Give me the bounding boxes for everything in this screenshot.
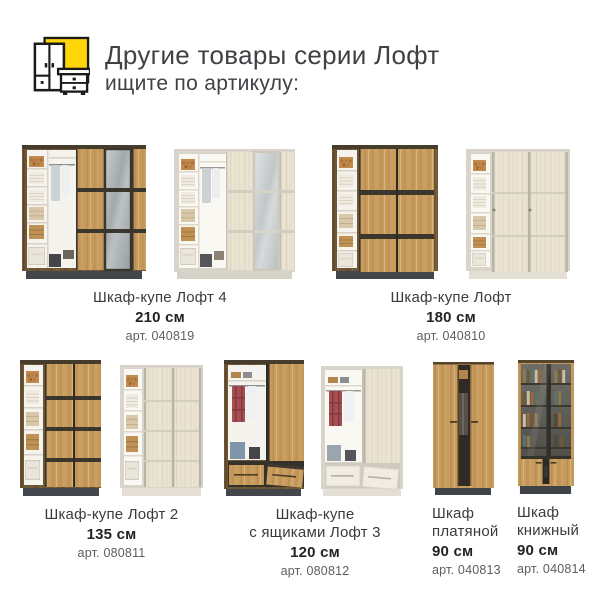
product-image-loft4-dark [20,144,148,280]
product-image-knizhny [517,359,575,495]
product-size: 210 см [20,309,300,327]
product-size: 120 см [222,544,408,562]
product-card-loft2: Шкаф-купе Лофт 2 135 см арт. 080811 [18,359,205,561]
product-image-loft2-dark [18,359,103,497]
product-article: арт. 040819 [20,329,300,344]
page-title: Другие товары серии Лофт [105,40,440,70]
product-card-loft3: Шкаф-купе с ящиками Лофт 3 120 см арт. 0… [222,359,408,579]
product-image-loft2-light [118,364,205,497]
product-article: арт. 080811 [18,546,205,561]
product-image-loft-dark [330,144,440,280]
product-name: Шкаф книжный [517,504,597,540]
product-image-loft4-light [172,148,297,280]
product-name: Шкаф платяной [432,505,516,541]
product-card-knizhny: Шкаф книжный 90 см арт. 040814 [517,359,597,577]
product-size: 90 см [432,543,516,561]
product-name: Шкаф-купе с ящиками Лофт 3 [222,506,408,542]
product-name: Шкаф-купе Лофт [330,289,572,307]
product-card-loft: Шкаф-купе Лофт 180 см арт. 040810 [330,144,572,344]
product-article: арт. 080812 [222,564,408,579]
product-name: Шкаф-купе Лофт 4 [20,289,300,307]
product-size: 135 см [18,526,205,544]
product-article: арт. 040813 [432,563,516,578]
product-image-loft3-dark [222,359,306,497]
product-article: арт. 040810 [330,329,572,344]
header: Другие товары серии Лофт ищите по артику… [32,36,440,96]
product-name: Шкаф-купе Лофт 2 [18,506,205,524]
product-image-platyanoy [432,361,495,496]
brand-logo [32,36,90,96]
product-image-loft3-light [319,365,405,497]
product-size: 180 см [330,309,572,327]
product-card-platyanoy: Шкаф платяной 90 см арт. 040813 [432,361,516,578]
page-subtitle: ищите по артикулу: [105,72,440,96]
product-image-loft-light [464,148,572,280]
catalog-page: Другие товары серии Лофт ищите по артику… [0,0,600,600]
product-article: арт. 040814 [517,562,597,577]
wardrobe-dresser-icon [32,36,90,96]
product-size: 90 см [517,542,597,560]
product-card-loft4: Шкаф-купе Лофт 4 210 см арт. 040819 [20,144,300,344]
